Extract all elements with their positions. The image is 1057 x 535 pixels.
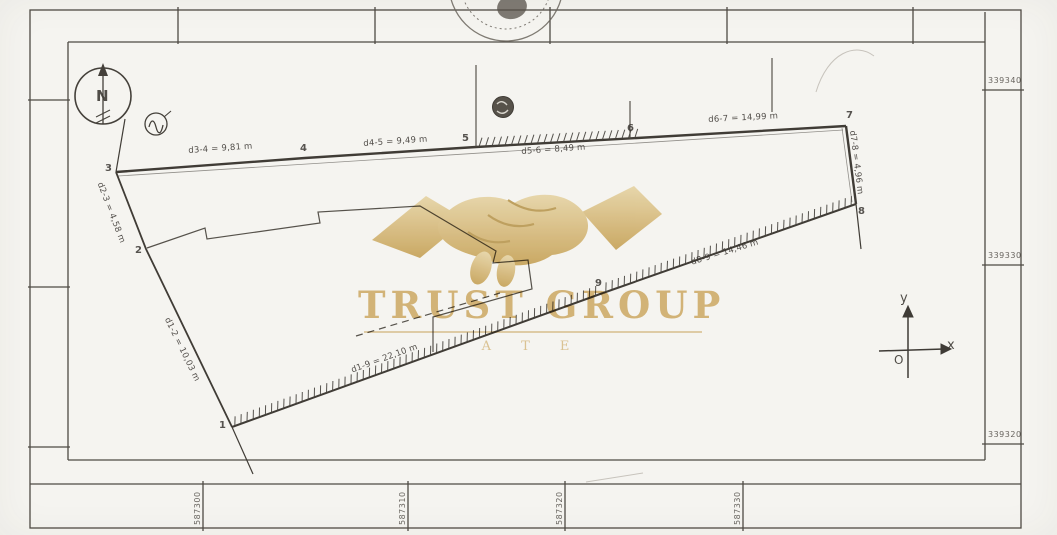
grid-label-easting-587320: 587320 xyxy=(555,491,564,525)
point-label-3: 3 xyxy=(105,163,112,174)
axis-origin-label: O xyxy=(894,353,903,367)
point-label-8: 8 xyxy=(858,206,865,217)
grid-label-easting-587310: 587310 xyxy=(398,491,407,525)
utility-symbol-b xyxy=(493,97,514,118)
survey-plan-sheet: d3-4 = 9,81 m d4-5 = 9,49 m d5-6 = 8,49 … xyxy=(0,0,1057,535)
point-label-5: 5 xyxy=(462,133,469,144)
grid-label-northing-339320: 339320 xyxy=(988,430,1022,439)
point-label-4: 4 xyxy=(300,143,307,154)
axis-symbol xyxy=(879,306,951,378)
utility-symbol-a xyxy=(145,111,171,135)
point-label-6: 6 xyxy=(627,123,634,134)
point-label-9: 9 xyxy=(595,278,602,289)
axis-x-label: x xyxy=(947,338,955,353)
point-label-1: 1 xyxy=(219,420,226,431)
grid-label-easting-587330: 587330 xyxy=(733,491,742,525)
north-letter: N xyxy=(96,87,109,105)
north-arrow-icon xyxy=(98,63,108,76)
plan-drawing xyxy=(0,0,1057,535)
round-stamp xyxy=(449,0,563,41)
point-label-2: 2 xyxy=(135,245,142,256)
point-label-7: 7 xyxy=(846,110,853,121)
building-outline xyxy=(147,206,532,352)
axis-y-label: y xyxy=(900,291,908,306)
grid-label-northing-339330: 339330 xyxy=(988,251,1022,260)
grid-label-northing-339340: 339340 xyxy=(988,76,1022,85)
grid-label-easting-587300: 587300 xyxy=(193,491,202,525)
frame xyxy=(28,7,1024,531)
axis-y-arrow-icon xyxy=(903,306,913,317)
hatched-edge-9-1 xyxy=(232,293,603,427)
